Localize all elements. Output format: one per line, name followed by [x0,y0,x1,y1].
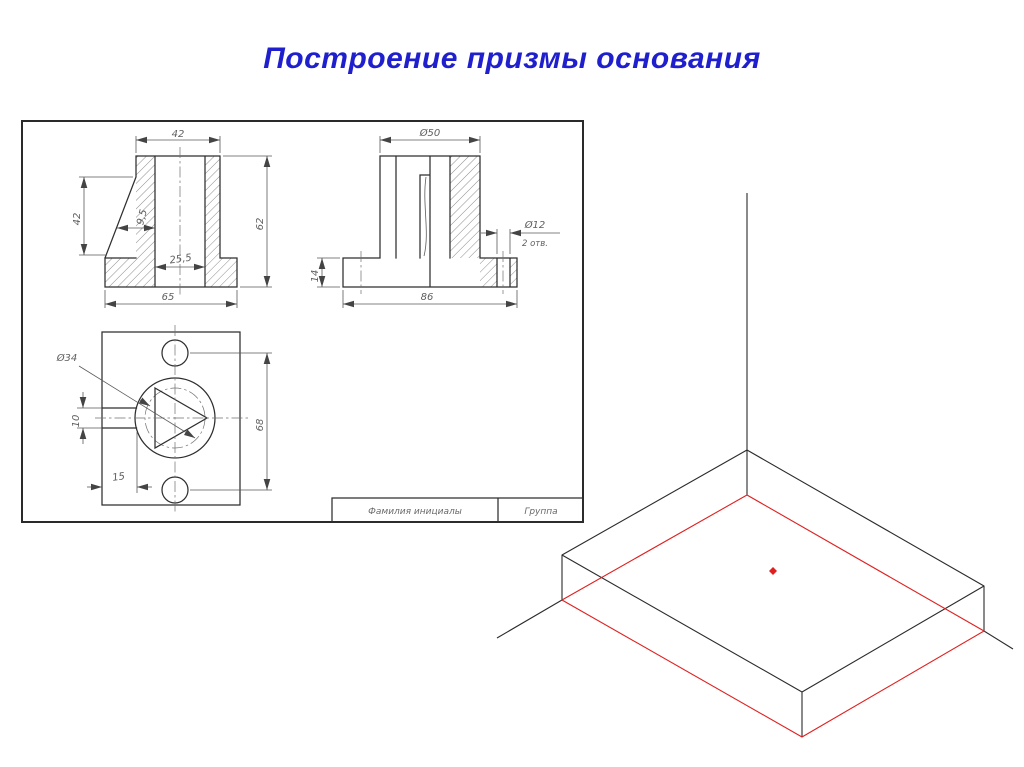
slide-title: Построение призмы основания [0,42,1024,76]
top-view: Ø34 10 15 68 [56,325,272,512]
dim-front-hole-width: 25,5 [169,253,193,267]
iso-construction [480,180,1024,767]
base-outline [562,495,984,737]
dim-side-base-length: 86 [421,292,434,303]
dim-top-hole-span: 68 [255,419,266,432]
dim-top-slot-width: 10 [71,415,82,428]
dim-side-flange-thickness: 14 [310,270,321,283]
titleblock-name-label: Фамилия инициалы [368,507,462,517]
center-point [769,567,777,575]
side-break-line [424,177,426,256]
dim-front-total-height: 62 [255,218,266,231]
front-view: 42 42 62 9,5 25,5 65 [72,129,272,308]
dim-front-width: 42 [172,129,185,140]
prism-edges [562,450,984,737]
dim-front-height-left: 42 [72,213,83,226]
dim-top-dia-boss: Ø34 [56,352,78,364]
dim-side-dia-top: Ø50 [419,127,441,139]
dim-top-slot-offset: 15 [112,471,126,484]
iso-construction-svg [480,180,1024,767]
dim-front-base-width: 65 [162,292,175,303]
iso-axes [497,193,1013,649]
